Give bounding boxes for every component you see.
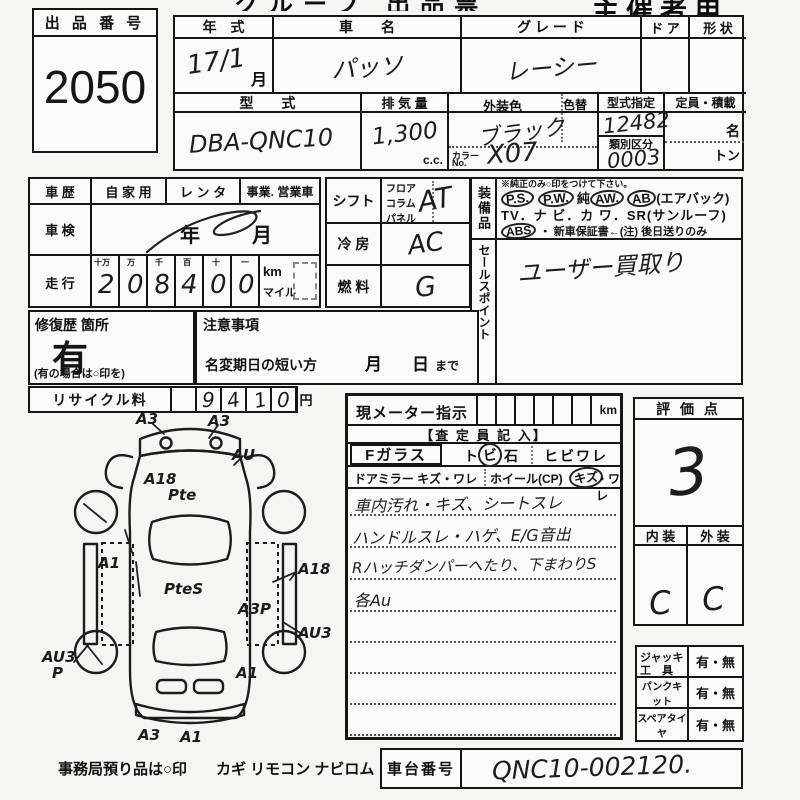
- caution-until: まで: [435, 357, 459, 374]
- deposit-items: カギ リモコン ナビロム: [216, 758, 374, 779]
- mileage-v5: 0: [238, 270, 255, 300]
- equipment-aw: AW.: [589, 189, 624, 209]
- drivetrain-table: シフト フロア コラム パネル AT 冷 房 AC 燃 料 G: [325, 177, 471, 308]
- color-change-header: 色替: [563, 96, 587, 113]
- exterior-value: C: [700, 579, 726, 619]
- grade-header: グ レ ー ド: [462, 17, 642, 39]
- color-no-value: X07: [486, 137, 539, 170]
- name-value: パッソ: [330, 46, 404, 86]
- diagram-annotation: A1: [236, 664, 258, 682]
- equipment-note: ※純正のみ○印をつけて下さい。: [501, 180, 737, 189]
- footer-note-row: 事務局預り品は○印 カギ リモコン ナビロム: [58, 758, 378, 780]
- accessory-label: スペアタイヤ: [637, 709, 689, 740]
- color-value-cell: ブラック カラー No. X07: [449, 113, 599, 169]
- type-designation-cell: 12482 類別区分 0003: [599, 113, 665, 169]
- capacity-cell: 名 トン: [665, 113, 746, 169]
- mileage-unit-cell: km マイル: [260, 256, 319, 308]
- shift-label: シフト: [327, 179, 382, 224]
- mileage-mile: マイル: [263, 284, 296, 300]
- inspector-notes-area: 車内汚れ・キズ、シートスレ ハンドルスレ・ハゲ、E/G音出 Rハッチダンパーへた…: [348, 489, 620, 737]
- recycle-v4: 0: [277, 388, 290, 412]
- equipment-jun: 純: [577, 191, 590, 206]
- inspector-header: 【査 定 員 記 入】: [348, 426, 620, 444]
- color-header-cell: 外装色 色替: [449, 94, 599, 113]
- fglass-opt-stone-1: ト: [464, 446, 478, 466]
- exterior-label: 外 装: [688, 527, 742, 544]
- form-title-clipped: グループ 出品票: [235, 0, 565, 11]
- mileage-v0: 2: [98, 270, 115, 300]
- year-value: 17/1: [185, 43, 247, 81]
- model-header: 型 式: [175, 94, 362, 113]
- mileage-v1: 0: [127, 270, 144, 300]
- mileage-h4: 十: [212, 257, 220, 268]
- equipment-label: 装備品: [474, 186, 493, 231]
- meter-cell[interactable]: [571, 396, 590, 426]
- capacity-header: 定員・積載: [665, 94, 746, 113]
- persons-suffix: 名: [726, 121, 740, 141]
- lot-number-value: 2050: [34, 37, 156, 137]
- chassis-label: 車台番号: [382, 750, 462, 787]
- meter-label: 現メーター指示: [356, 402, 468, 423]
- mileage-h1: 万: [127, 257, 135, 268]
- accessory-label-cell: ジャッキ 工 具: [637, 647, 689, 676]
- capacity-divider: [665, 141, 744, 143]
- meter-cell[interactable]: [533, 396, 552, 426]
- office-deposit-note: 事務局預り品は○印: [58, 758, 187, 779]
- car-diagram: A3 A3 A18 AU Pte A1 PteS A18 A3P AU3 AU3…: [40, 412, 340, 757]
- history-rental: レ ン タ: [167, 179, 241, 205]
- inspector-note-line: 各Au: [354, 587, 391, 611]
- score-box: 評 価 点 3 内 装 外 装 C C: [633, 397, 744, 626]
- sales-point-box: セールスポイント ユーザー買取り: [470, 238, 743, 385]
- door-header: ド ア: [642, 17, 690, 39]
- note-ruled-line: [350, 641, 616, 643]
- fuel-label: 燃 料: [327, 266, 382, 308]
- accessory-row: ジャッキ 工 具 有・無: [637, 647, 742, 678]
- repair-box: 修復歴 箇所 有 (有の場合は○印を): [28, 310, 195, 385]
- recycle-label: リサイクル料: [30, 388, 172, 411]
- shift-opt-panel: パネル: [386, 210, 416, 225]
- name-value-cell: パッソ: [274, 39, 462, 94]
- diagram-annotation: A1: [180, 728, 202, 746]
- mirror-wheel-row: ドアミラー キズ・ワレ ホイール(CP) キズ ・ワレ: [348, 467, 620, 489]
- caution-day: 日: [412, 350, 429, 375]
- score-value-cell: 3: [635, 420, 742, 525]
- recycle-v3: 1: [252, 387, 269, 413]
- form-title: グループ 出品票: [235, 0, 488, 11]
- diagram-annotation: AU3: [298, 624, 332, 642]
- chassis-value: QNC10-002120.: [492, 750, 693, 786]
- accessory-value: 有・無: [689, 647, 742, 676]
- diagram-annotation: A3: [208, 412, 230, 430]
- recycle-d1: 9: [197, 388, 222, 411]
- equipment-pw: P.W.: [537, 188, 574, 208]
- meter-box: 現メーター指示 km 【査 定 員 記 入】 Fガラス ト ビ 石 ヒビワレ ド…: [345, 393, 623, 740]
- fglass-opt-stone-3: 石: [504, 446, 518, 466]
- recycle-d4: 0: [272, 388, 297, 411]
- accessory-row: パンクキット 有・無: [637, 678, 742, 709]
- diagram-annotation: AU: [232, 446, 255, 464]
- inspector-note-line: ハンドルスレ・ハゲ、E/G音出: [352, 521, 571, 549]
- interior-value-cell: C: [635, 546, 688, 624]
- lot-number-box: 出 品 番 号 2050: [32, 8, 158, 153]
- model-value: DBA-QNC10: [188, 123, 333, 159]
- displacement-value-cell: 1,300 c.c.: [362, 113, 449, 169]
- diagram-annotation: A3: [138, 726, 160, 744]
- note-ruled-line: [350, 672, 616, 674]
- diagram-annotation: A3P: [238, 600, 271, 618]
- equipment-line2: TV．ナ ビ．カ ワ．SR(サンルーフ): [501, 209, 737, 222]
- shift-value: AT: [415, 180, 454, 218]
- caution-line: 名変期日の短い方: [205, 355, 317, 375]
- meter-cell[interactable]: [476, 396, 495, 426]
- mileage-d3: 百 4: [176, 256, 204, 308]
- interior-label: 内 装: [635, 527, 688, 544]
- score-value: 3: [664, 434, 712, 512]
- note-ruled-line: [350, 703, 616, 705]
- equipment-warranty: ・ 新車保証書←(注) 後日送りのみ: [540, 226, 707, 238]
- mirror-label: ドアミラー キズ・ワレ: [354, 470, 477, 487]
- meter-unit: km: [600, 403, 617, 417]
- mileage-d1: 万 0: [120, 256, 148, 308]
- model-value-cell: DBA-QNC10: [175, 113, 362, 169]
- meter-cell[interactable]: [495, 396, 514, 426]
- fglass-opt-stone-2: ビ: [477, 442, 503, 468]
- equipment-ps: P.S.: [500, 189, 534, 209]
- diagram-annotation: A3: [136, 410, 158, 428]
- grade-value-cell: レーシー: [462, 39, 642, 94]
- recycle-v2: 4: [225, 387, 242, 413]
- diagram-annotation: A18: [298, 560, 330, 578]
- caution-month: 月: [365, 350, 382, 375]
- recycle-d3: 1: [247, 388, 272, 411]
- meter-cell[interactable]: [514, 396, 533, 426]
- equipment-airbag: (エアバック): [656, 191, 729, 206]
- mileage-h2: 千: [155, 257, 163, 268]
- door-value-cell: [642, 39, 690, 94]
- fuel-value-cell: G: [382, 266, 469, 308]
- mileage-h0: 十万: [94, 257, 110, 268]
- accessory-row: スペアタイヤ 有・無: [637, 709, 742, 740]
- mileage-d0: 十万 2: [92, 256, 120, 308]
- caution-label: 注意事項: [203, 315, 259, 335]
- displacement-header: 排 気 量: [362, 94, 449, 113]
- accessory-value: 有・無: [689, 709, 742, 740]
- note-ruled-line: [350, 578, 616, 580]
- diagram-annotation: Pte: [168, 486, 196, 504]
- equipment-content: ※純正のみ○印をつけて下さい。 P.S. P.W. 純AW. AB(エアバック)…: [497, 179, 741, 238]
- diagram-annotation: A1: [98, 554, 120, 572]
- inspection-value-cell: 年 月: [92, 205, 319, 256]
- mileage-v4: 0: [210, 270, 227, 300]
- repair-note: (有の場合は○印を): [34, 365, 125, 381]
- color-no-label-2: No.: [452, 158, 467, 168]
- meter-unit-cell: km: [590, 396, 620, 426]
- recycle-row: リサイクル料 9 4 1 0 円: [28, 386, 298, 413]
- exterior-value-cell: C: [688, 546, 742, 624]
- shape-header: 形 状: [690, 17, 746, 39]
- recycle-unit: 円: [297, 388, 315, 411]
- inspector-note-line: 車内汚れ・キズ、シートスレ: [354, 489, 562, 517]
- interior-value: C: [647, 583, 673, 623]
- equipment-ab: AB: [627, 189, 657, 208]
- accessory-label: パンクキット: [637, 678, 689, 707]
- mileage-km: km: [263, 264, 282, 279]
- history-label: 車 歴: [30, 179, 92, 205]
- accessory-label2: 工 具: [640, 662, 673, 678]
- vehicle-info-table: 年 式 車 名 グ レ ー ド ド ア 形 状 17/1 月 パッソ レーシー …: [173, 15, 744, 171]
- shift-opt-floor: フロア: [386, 180, 416, 195]
- type-designation-value: 12482: [602, 108, 671, 139]
- equipment-box: 装備品 ※純正のみ○印をつけて下さい。 P.S. P.W. 純AW. AB(エア…: [470, 177, 743, 240]
- mirror-wheel-divider: [484, 469, 486, 486]
- inspection-label: 車 検: [30, 205, 92, 256]
- fglass-divider: [531, 446, 533, 464]
- shift-value-cell: フロア コラム パネル AT: [382, 179, 469, 224]
- grade-value: レーシー: [504, 45, 598, 87]
- mileage-label: 走 行: [30, 256, 92, 308]
- recycle-d2: 4: [222, 388, 247, 411]
- auction-sheet-scan: { "header": { "form_title": "グループ 出品票", …: [0, 0, 800, 800]
- lot-number-label: 出 品 番 号: [34, 10, 156, 37]
- chassis-box: 車台番号 QNC10-002120.: [380, 748, 743, 789]
- wheel-label: ホイール(CP): [490, 470, 563, 487]
- mileage-h5: 一: [241, 257, 249, 268]
- displacement-value: 1,300: [371, 118, 439, 151]
- mileage-d5: 一 0: [232, 256, 260, 308]
- diagram-annotation: P: [52, 664, 63, 682]
- year-value-cell: 17/1 月: [175, 39, 274, 94]
- history-private: 自 家 用: [92, 179, 167, 205]
- meter-cell[interactable]: [552, 396, 571, 426]
- aircon-value: AC: [406, 227, 446, 262]
- meter-header-row: 現メーター指示 km: [348, 396, 620, 426]
- history-table: 車 歴 自 家 用 レ ン タ 事業. 営業車 車 検 年 月 走 行 十万 2…: [28, 177, 321, 308]
- score-subheader-row: 内 装 外 装: [635, 525, 742, 546]
- fglass-label: Fガラス: [350, 444, 442, 465]
- year-header: 年 式: [175, 17, 274, 39]
- accessories-box: ジャッキ 工 具 有・無 パンクキット 有・無 スペアタイヤ 有・無: [635, 645, 744, 742]
- mileage-h3: 百: [183, 257, 191, 268]
- class-value: 0003: [606, 145, 661, 174]
- month-suffix: 月: [251, 66, 267, 90]
- cc-suffix: c.c.: [423, 153, 443, 167]
- tons-suffix: トン: [714, 145, 740, 164]
- caution-box: 注意事項 名変期日の短い方 月 日 まで: [195, 310, 479, 385]
- aircon-label: 冷 房: [327, 224, 382, 266]
- fuel-value: G: [413, 270, 437, 303]
- inspector-note-line: Rハッチダンパーへたり、下まわりS: [352, 553, 597, 578]
- inspection-scribble: [92, 205, 319, 256]
- aircon-value-cell: AC: [382, 224, 469, 266]
- sales-point-value: ユーザー買取り: [516, 242, 686, 289]
- diagram-annotation: PteS: [164, 580, 203, 598]
- mileage-v3: 4: [181, 270, 198, 300]
- note-ruled-line: [350, 734, 616, 736]
- name-header: 車 名: [274, 17, 462, 39]
- mileage-v2: 8: [152, 269, 173, 301]
- history-commercial: 事業. 営業車: [241, 179, 319, 205]
- accessory-value: 有・無: [689, 678, 742, 707]
- shape-value-cell: [690, 39, 746, 94]
- equipment-label-strip: 装備品: [472, 179, 497, 238]
- shift-opt-column: コラム: [386, 195, 416, 210]
- mileage-d2: 千 8: [148, 256, 176, 308]
- mileage-d4: 十 0: [204, 256, 232, 308]
- score-label: 評 価 点: [635, 399, 742, 420]
- recycle-v1: 9: [202, 388, 215, 412]
- fglass-opt-crack: ヒビワレ: [544, 446, 608, 466]
- mileage-checkbox: [293, 262, 317, 300]
- fglass-row: Fガラス ト ビ 石 ヒビワレ: [348, 444, 620, 467]
- recycle-d0: [172, 388, 197, 411]
